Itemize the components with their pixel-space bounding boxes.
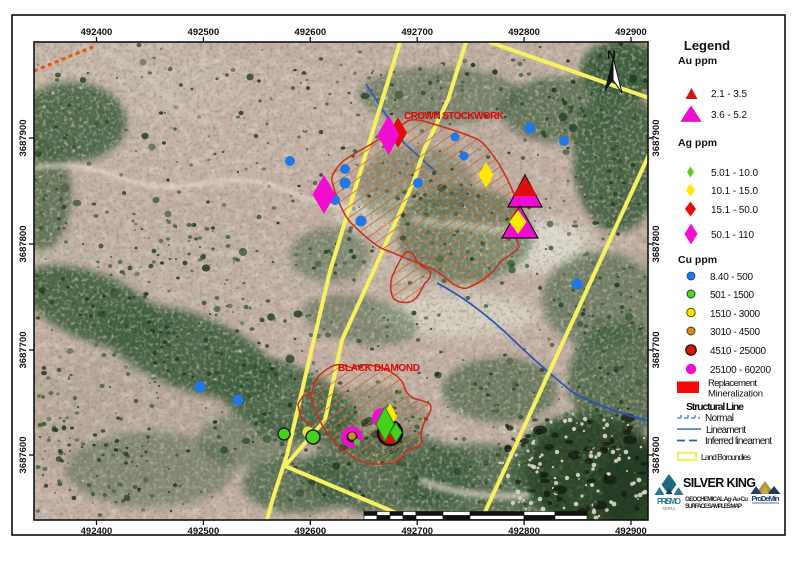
svg-text:3.6 - 5.2: 3.6 - 5.2 (711, 110, 747, 121)
svg-text:10.1 - 15.0: 10.1 - 15.0 (711, 186, 758, 197)
svg-text:492400: 492400 (81, 526, 113, 537)
svg-text:Lineament: Lineament (706, 425, 746, 436)
svg-text:492900: 492900 (615, 526, 647, 537)
svg-text:3687800: 3687800 (18, 226, 29, 263)
svg-text:Ag ppm: Ag ppm (678, 137, 717, 149)
svg-text:492400: 492400 (81, 27, 113, 38)
svg-text:3687600: 3687600 (651, 437, 662, 474)
svg-text:3687700: 3687700 (651, 332, 662, 369)
svg-text:SILVER KING: SILVER KING (683, 476, 756, 490)
svg-text:25100 - 60200: 25100 - 60200 (710, 365, 771, 376)
svg-text:PRISMO: PRISMO (657, 497, 681, 506)
svg-text:3687600: 3687600 (18, 437, 29, 474)
svg-text:Inferred lineament: Inferred lineament (705, 436, 772, 447)
svg-text:4510 - 25000: 4510 - 25000 (710, 346, 766, 357)
svg-text:492900: 492900 (615, 27, 647, 38)
svg-text:Cu ppm: Cu ppm (678, 254, 717, 266)
svg-text:Normal: Normal (705, 413, 734, 424)
svg-text:2.1 - 3.5: 2.1 - 3.5 (711, 89, 747, 100)
svg-text:3687700: 3687700 (18, 332, 29, 369)
svg-text:Mineralization: Mineralization (708, 389, 763, 400)
svg-text:Replacement: Replacement (708, 378, 757, 389)
svg-text:GEOCHEMICAL Ag- Au-Cu: GEOCHEMICAL Ag- Au-Cu (685, 496, 748, 503)
svg-text:Structural Line: Structural Line (686, 401, 744, 413)
svg-text:5.01 - 10.0: 5.01 - 10.0 (711, 168, 758, 179)
svg-text:8.40 - 500: 8.40 - 500 (710, 272, 753, 283)
svg-text:ProDeMin: ProDeMin (752, 494, 780, 503)
svg-text:Land Boroundies: Land Boroundies (701, 452, 751, 462)
svg-text:3687800: 3687800 (651, 226, 662, 263)
svg-text:3687900: 3687900 (651, 120, 662, 157)
svg-text:3687900: 3687900 (18, 120, 29, 157)
svg-text:15.1 - 50.0: 15.1 - 50.0 (711, 205, 758, 216)
svg-text:BLACK DIAMOND: BLACK DIAMOND (338, 363, 420, 374)
svg-text:492500: 492500 (188, 27, 220, 38)
svg-text:150: 150 (520, 503, 529, 509)
svg-text:492500: 492500 (188, 526, 220, 537)
svg-text:492800: 492800 (508, 27, 540, 38)
svg-text:METALS: METALS (663, 506, 676, 511)
svg-text:Au ppm: Au ppm (678, 55, 717, 67)
svg-text:Legend: Legend (684, 38, 730, 53)
svg-text:50.1 - 110: 50.1 - 110 (711, 230, 754, 241)
svg-text:SURFACE SAMPLES MAP: SURFACE SAMPLES MAP (685, 503, 742, 510)
svg-text:1510 - 3000: 1510 - 3000 (710, 309, 760, 320)
svg-text:492700: 492700 (401, 526, 433, 537)
svg-text:492700: 492700 (401, 27, 433, 38)
svg-text:501 - 1500: 501 - 1500 (710, 290, 754, 301)
svg-text:492800: 492800 (508, 526, 540, 537)
svg-text:492600: 492600 (294, 526, 326, 537)
svg-text:CROWN STOCKWORK: CROWN STOCKWORK (404, 111, 505, 122)
svg-text:N: N (607, 48, 616, 62)
svg-text:3010 - 4500: 3010 - 4500 (710, 327, 760, 338)
svg-text:492600: 492600 (294, 27, 326, 38)
